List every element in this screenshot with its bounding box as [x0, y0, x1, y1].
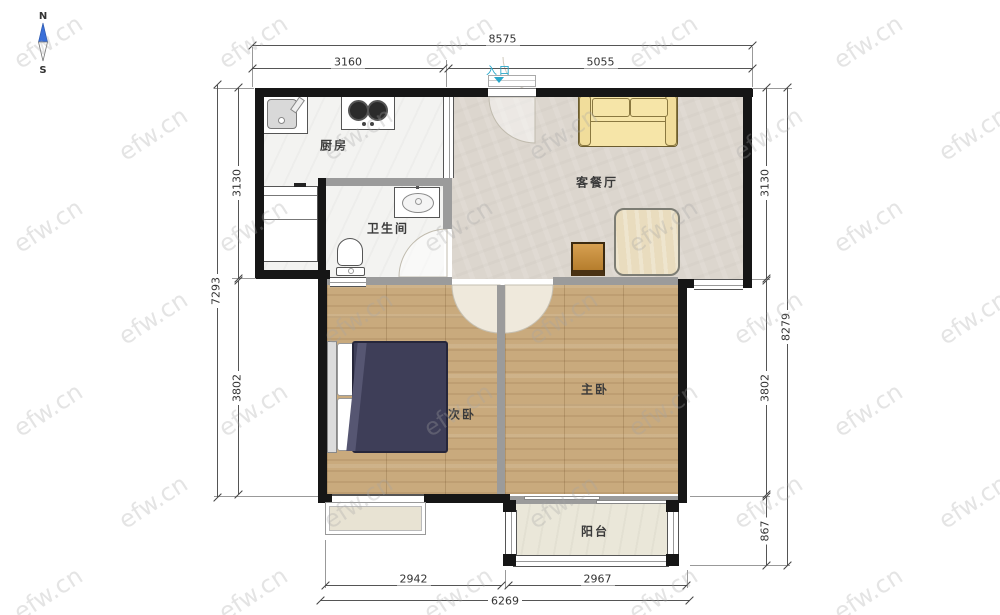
dim-right-middle: 3802: [766, 281, 767, 494]
dining-table: [614, 208, 680, 276]
dim-left-upper-label: 3130: [231, 166, 244, 200]
ext-line: [690, 496, 770, 497]
watermark-text: efw.cn: [829, 377, 908, 442]
compass-south-label: S: [34, 66, 52, 76]
bed-blanket: [352, 341, 448, 453]
watermark-text: efw.cn: [9, 377, 88, 442]
watermark-text: efw.cn: [419, 561, 498, 615]
watermark-text: efw.cn: [624, 561, 703, 615]
master-bedroom-label: 主卧: [581, 381, 609, 398]
wall-master-right: [678, 279, 687, 503]
watermark-text: efw.cn: [9, 561, 88, 615]
iwall-bedroom-top-right: [553, 277, 678, 285]
wall-bedroom-left: [318, 279, 327, 503]
dim-left-lower-label: 3802: [231, 371, 244, 405]
balcony-label: 阳台: [581, 523, 609, 540]
balcony-window-bottom: [513, 555, 669, 567]
bathroom-bottom-vent-window: [330, 277, 366, 287]
watermark-text: efw.cn: [214, 561, 293, 615]
bay-window-sill-line: [332, 494, 424, 496]
dim-right-upper: 3130: [766, 88, 767, 278]
dim-top-overall-label: 8575: [486, 33, 520, 46]
ext-line: [214, 88, 254, 89]
dim-left-lower: 3802: [238, 281, 239, 494]
wall-laundry-niche: [318, 178, 326, 270]
dim-left-overall: 7293: [217, 85, 218, 497]
balcony-post-tl: [503, 500, 516, 512]
toilet: [336, 238, 365, 276]
compass-north-label: N: [34, 12, 52, 22]
kitchen-sliding-door: [443, 97, 454, 178]
kitchen-sink: [262, 94, 308, 134]
watermark-text: efw.cn: [114, 469, 193, 534]
dim-right-upper-label: 3130: [759, 166, 772, 200]
watermark-text: efw.cn: [729, 285, 808, 350]
balcony-sliding-door-right: [596, 500, 672, 504]
iwall-bedroom-divider: [497, 285, 505, 494]
second-bedroom-label: 次卧: [448, 406, 476, 423]
dim-left-upper: 3130: [238, 88, 239, 278]
wall-kitchen-bottom: [255, 270, 330, 279]
wall-living-right: [743, 88, 752, 288]
dim-right-balcony-label: 867: [759, 518, 772, 545]
watermark-text: efw.cn: [829, 9, 908, 74]
dim-top-kitchen: 3160: [252, 68, 444, 69]
watermark-text: efw.cn: [934, 285, 1000, 350]
watermark-text: efw.cn: [214, 377, 293, 442]
compass-needle-icon: [35, 22, 51, 62]
dim-top-living-label: 5055: [584, 56, 618, 69]
ext-line: [505, 570, 506, 588]
watermark-text: efw.cn: [624, 9, 703, 74]
bathroom-washbasin: [394, 187, 440, 218]
balcony-post-br: [666, 554, 679, 566]
dim-right-overall: 8279: [787, 88, 788, 565]
kitchen-label: 厨房: [320, 137, 348, 154]
dim-bottom-overall: 6269: [320, 600, 690, 601]
iwall-bathroom-living: [443, 178, 452, 229]
watermark-text: efw.cn: [934, 469, 1000, 534]
watermark-text: efw.cn: [829, 193, 908, 258]
dim-bottom-left-label: 2942: [397, 573, 431, 586]
ext-line: [690, 565, 790, 566]
watermark-text: efw.cn: [9, 193, 88, 258]
entrance-opening: [488, 88, 536, 97]
dim-right-balcony: 867: [766, 497, 767, 565]
living-south-window: [694, 279, 743, 290]
balcony-sliding-door-left: [524, 496, 600, 500]
bay-window: [325, 502, 426, 535]
watermark-text: efw.cn: [214, 9, 293, 74]
dim-top-overall: 8575: [252, 45, 753, 46]
bed-headboard: [327, 341, 337, 453]
entrance-arrow-icon: [494, 77, 504, 83]
balcony-window-left: [505, 510, 517, 555]
iwall-kitchen-bathroom: [326, 178, 444, 186]
watermark-text: efw.cn: [934, 101, 1000, 166]
living-dining-label: 客餐厅: [576, 174, 618, 191]
compass: N S: [34, 12, 52, 76]
dining-chair: [571, 242, 605, 276]
washing-machine: [263, 186, 318, 262]
dim-top-kitchen-label: 3160: [331, 56, 365, 69]
wall-kitchen-left: [255, 88, 264, 279]
ext-line: [325, 540, 326, 588]
watermark-text: efw.cn: [114, 101, 193, 166]
dim-right-middle-label: 3802: [759, 371, 772, 405]
floorplan-canvas: N S: [0, 0, 1000, 615]
dim-bottom-right: 2967: [508, 585, 687, 586]
wall-bedroom-bottom-mid: [424, 494, 510, 503]
ext-line: [214, 496, 318, 497]
balcony-post-bl: [503, 554, 516, 566]
entrance-label: 入口: [486, 62, 512, 78]
dim-bottom-left: 2942: [325, 585, 502, 586]
watermark-text: efw.cn: [114, 285, 193, 350]
dim-right-overall-label: 8279: [780, 310, 793, 344]
bathroom-label: 卫生间: [367, 220, 409, 237]
balcony-post-tr: [666, 500, 679, 512]
watermark-text: efw.cn: [829, 561, 908, 615]
balcony-window-right: [667, 510, 679, 555]
dim-left-overall-label: 7293: [210, 274, 223, 308]
kitchen-stove: [341, 94, 395, 130]
dim-bottom-overall-label: 6269: [488, 595, 522, 608]
sofa: [578, 94, 678, 147]
dim-bottom-right-label: 2967: [581, 573, 615, 586]
